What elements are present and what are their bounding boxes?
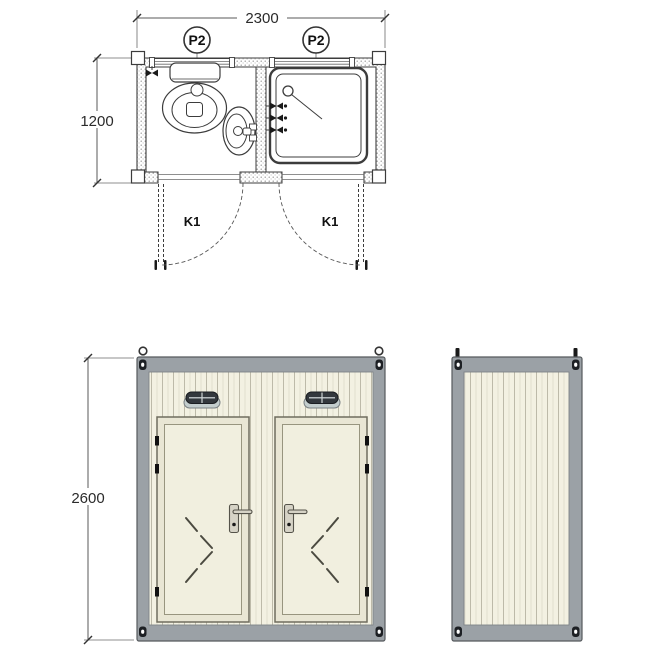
shower-tray-icon: [270, 68, 367, 163]
corner-casting-icon: [376, 627, 384, 638]
lifting-eye-icon: [139, 347, 147, 355]
window-tag-right: P2: [303, 27, 329, 59]
hinge-icon: [365, 587, 369, 597]
corner-post: [132, 52, 145, 65]
corner-post: [132, 170, 145, 183]
keyhole-icon: [287, 523, 291, 527]
partition-wall: [256, 67, 266, 172]
hinge-icon: [365, 464, 369, 474]
side-elevation: [452, 348, 582, 641]
dimension-width: 2300: [133, 9, 389, 48]
technical-drawing-page: 2300 1200 P2 P2: [0, 0, 650, 650]
door-right: [275, 417, 369, 622]
dim-width-label: 2300: [245, 10, 278, 27]
floor-plan: 2300 1200 P2 P2: [73, 9, 389, 270]
wall-stub-left: [144, 172, 158, 183]
corner-casting-icon: [139, 627, 147, 638]
corner-casting-icon: [139, 360, 147, 371]
window-tag-left: P2: [184, 27, 210, 59]
corner-casting-icon: [572, 360, 580, 371]
corner-casting-icon: [455, 360, 463, 371]
door-tag-left-label: K1: [184, 214, 201, 229]
dimension-height: 2600: [63, 354, 134, 644]
lifting-eye-icon: [375, 347, 383, 355]
window-tag-right-label: P2: [307, 32, 324, 48]
corner-post: [373, 170, 386, 183]
door-swing-right: K1: [279, 183, 368, 270]
hinge-icon: [155, 587, 159, 597]
keyhole-icon: [232, 523, 236, 527]
dimension-depth: 1200: [73, 54, 134, 187]
valve-icon: [146, 66, 158, 77]
dim-height-label: 2600: [71, 490, 104, 507]
door-swing-left: K1: [155, 183, 244, 270]
corner-casting-icon: [376, 360, 384, 371]
hinge-icon: [155, 436, 159, 446]
hinge-icon: [155, 464, 159, 474]
window-tag-left-label: P2: [188, 32, 205, 48]
vent-louver-icon: [304, 392, 340, 408]
corner-post: [373, 52, 386, 65]
window-symbol-right: [270, 58, 355, 68]
door-tag-right-label: K1: [322, 214, 339, 229]
dim-depth-label: 1200: [80, 113, 113, 130]
container-toilet-drawing: 2300 1200 P2 P2: [0, 0, 650, 650]
wall-stub-center: [240, 172, 282, 183]
wall-panel-side: [464, 372, 569, 625]
corner-casting-icon: [572, 627, 580, 638]
vent-louver-icon: [184, 392, 220, 408]
washbasin-icon: [223, 107, 257, 155]
front-elevation: 2600: [63, 347, 385, 644]
hinge-icon: [365, 436, 369, 446]
corner-casting-icon: [455, 627, 463, 638]
toilet-icon: [163, 63, 227, 133]
door-left: [155, 417, 252, 622]
